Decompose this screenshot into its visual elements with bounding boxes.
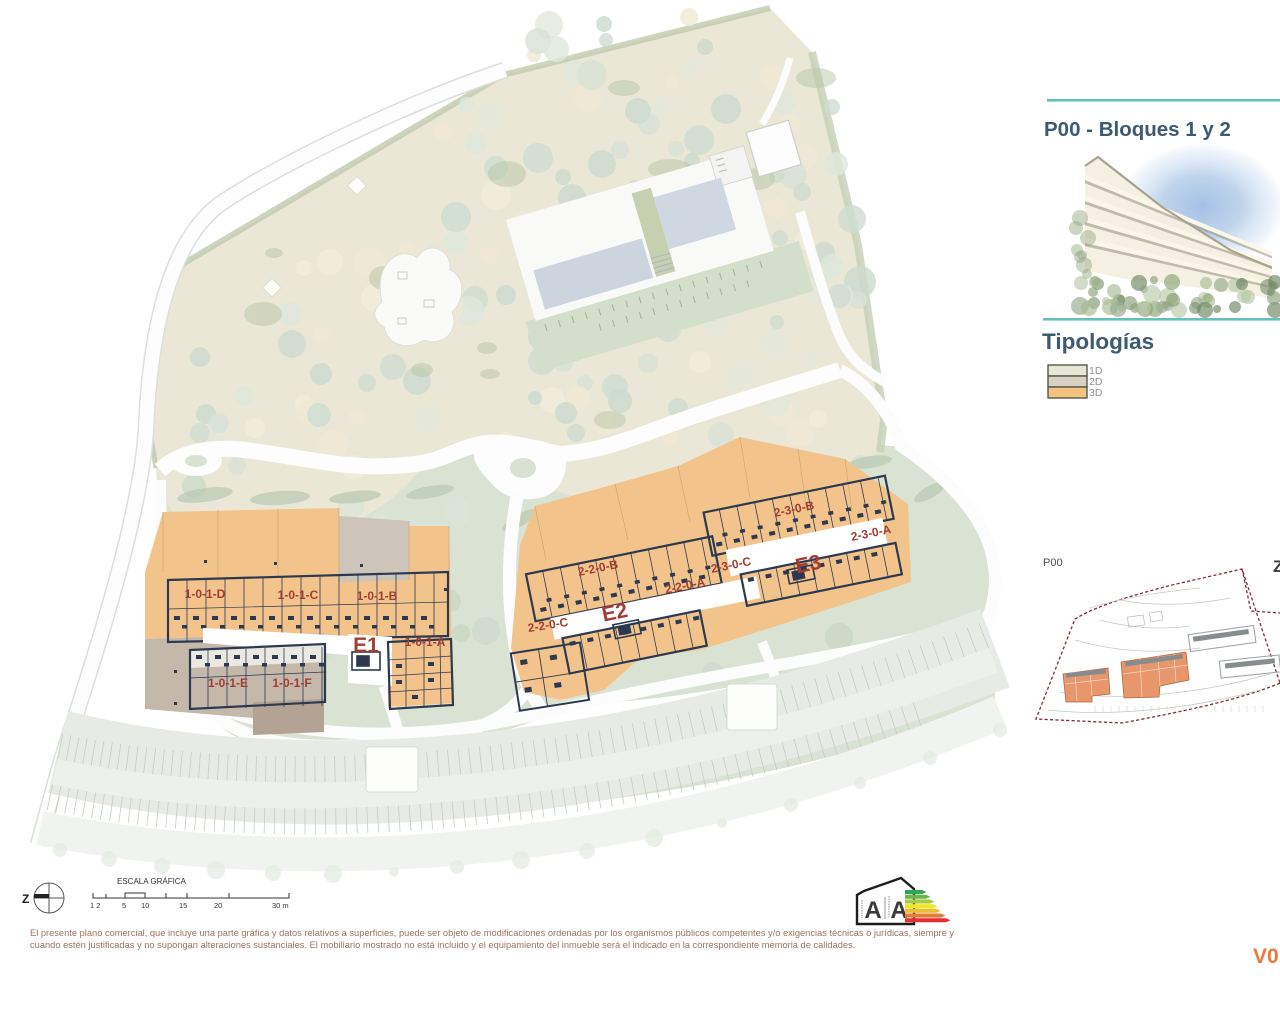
svg-text:V01: V01: [1253, 945, 1280, 968]
svg-text:15: 15: [179, 901, 187, 910]
svg-text:3D: 3D: [1089, 387, 1103, 399]
svg-text:ESCALA GRÁFICA: ESCALA GRÁFICA: [117, 877, 187, 886]
svg-text:A: A: [864, 897, 881, 924]
svg-text:20: 20: [214, 901, 222, 910]
svg-text:cuando estén justificadas y no: cuando estén justificadas y no supongan …: [30, 940, 855, 950]
svg-text:E1: E1: [353, 634, 379, 657]
svg-text:1 2: 1 2: [90, 901, 100, 910]
svg-text:1-0-1-A: 1-0-1-A: [405, 635, 446, 649]
svg-text:1-0-1-C: 1-0-1-C: [278, 588, 319, 602]
svg-text:P00: P00: [1043, 557, 1063, 569]
svg-text:1-0-1-D: 1-0-1-D: [185, 587, 226, 601]
svg-text:Tipologías: Tipologías: [1042, 329, 1154, 354]
svg-text:10: 10: [141, 901, 149, 910]
svg-text:1-0-1-F: 1-0-1-F: [272, 676, 311, 690]
svg-text:5: 5: [122, 901, 126, 910]
svg-text:El presente plano comercial, q: El presente plano comercial, que incluye…: [30, 928, 954, 938]
svg-text:1-0-1-B: 1-0-1-B: [357, 589, 398, 603]
svg-text:P00 - Bloques 1 y 2: P00 - Bloques 1 y 2: [1044, 118, 1231, 141]
svg-text:30 m: 30 m: [272, 901, 289, 910]
svg-text:Z: Z: [1273, 557, 1280, 576]
svg-text:1-0-1-E: 1-0-1-E: [208, 676, 248, 690]
svg-text:Z: Z: [22, 892, 29, 906]
